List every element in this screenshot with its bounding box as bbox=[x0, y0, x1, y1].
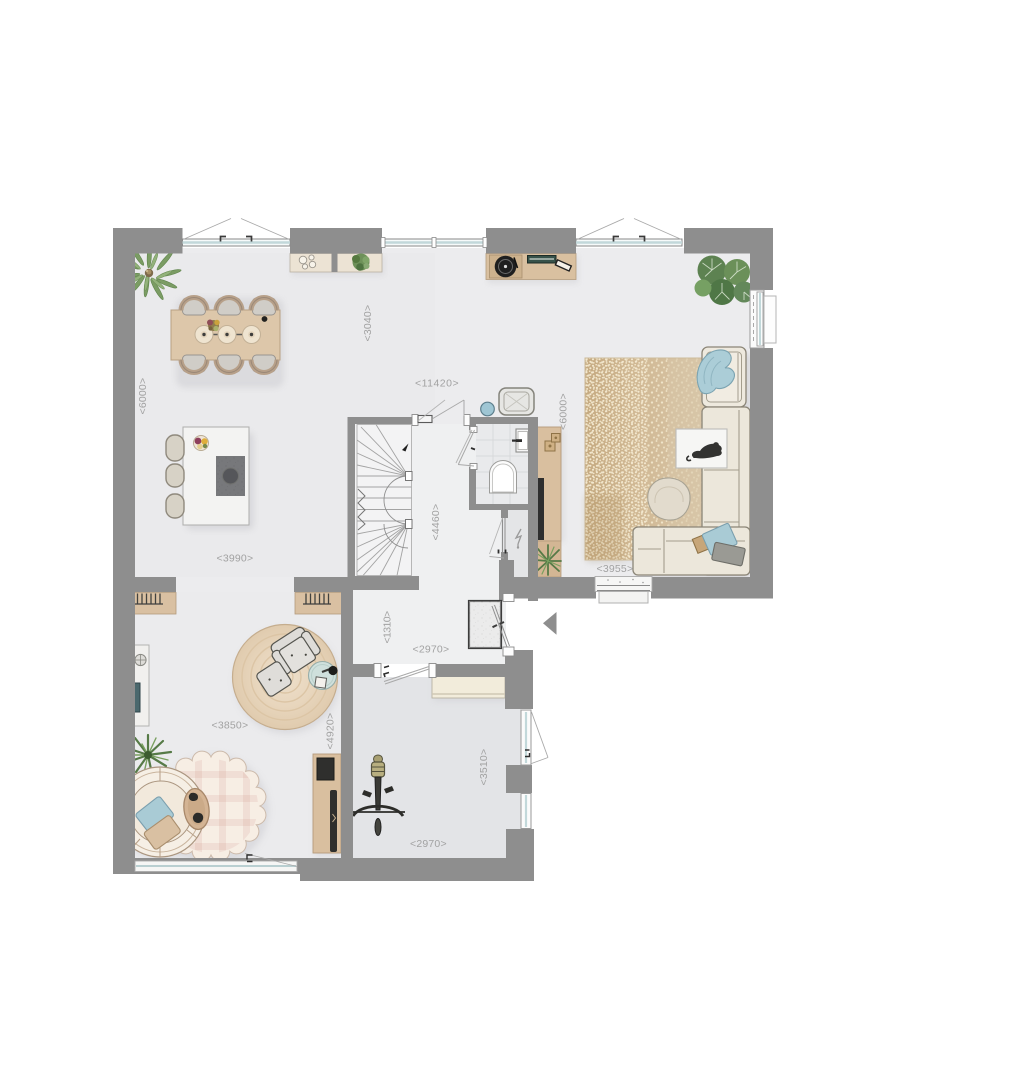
svg-text:<3850>: <3850> bbox=[212, 720, 249, 732]
svg-text:<11420>: <11420> bbox=[415, 378, 459, 390]
svg-text:<6000>: <6000> bbox=[137, 378, 149, 415]
svg-text:<4920>: <4920> bbox=[325, 713, 337, 750]
svg-text:<3040>: <3040> bbox=[362, 305, 374, 342]
svg-text:<3955>: <3955> bbox=[597, 563, 634, 575]
svg-text:<4460>: <4460> bbox=[430, 504, 442, 541]
svg-text:<3990>: <3990> bbox=[217, 553, 254, 565]
svg-text:<1310>: <1310> bbox=[382, 611, 394, 644]
svg-text:<2970>: <2970> bbox=[413, 644, 450, 656]
svg-text:<2970>: <2970> bbox=[410, 838, 447, 850]
svg-text:<3510>: <3510> bbox=[478, 749, 490, 786]
svg-text:<6000>: <6000> bbox=[558, 393, 570, 430]
